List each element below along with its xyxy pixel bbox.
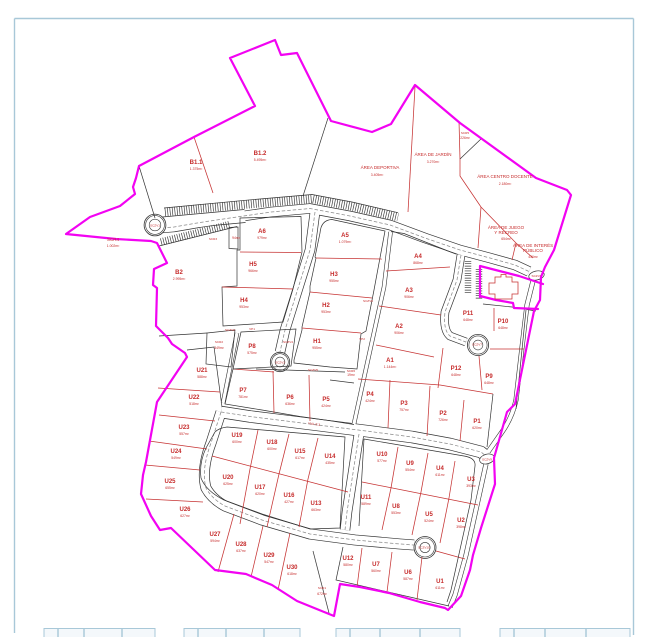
svg-text:U17: U17 <box>254 485 266 491</box>
svg-text:U23: U23 <box>178 425 190 431</box>
svg-text:SCZV5: SCZV5 <box>308 368 318 372</box>
svg-text:P4: P4 <box>366 392 374 398</box>
svg-text:P6: P6 <box>286 395 294 401</box>
svg-text:SCZV1: SCZV1 <box>150 224 160 228</box>
svg-text:P9: P9 <box>485 374 493 380</box>
svg-text:757m²: 757m² <box>399 408 409 412</box>
svg-text:A5: A5 <box>341 233 349 239</box>
svg-text:U14: U14 <box>324 454 336 460</box>
svg-text:553m²: 553m² <box>391 511 401 515</box>
svg-text:1.144m²: 1.144m² <box>384 365 397 369</box>
svg-text:1.002m²: 1.002m² <box>107 244 120 248</box>
svg-text:648m²: 648m² <box>463 318 473 322</box>
svg-text:U13: U13 <box>310 501 322 507</box>
svg-text:1.375m²: 1.375m² <box>190 167 203 171</box>
svg-text:349m²: 349m² <box>214 346 224 350</box>
svg-text:SCZV6: SCZV6 <box>363 299 373 303</box>
svg-text:19m²: 19m² <box>347 373 356 377</box>
svg-text:ÁREA CENTRO DOCENTE: ÁREA CENTRO DOCENTE <box>477 173 533 179</box>
svg-text:637m²: 637m² <box>236 549 246 553</box>
svg-text:781m²: 781m² <box>238 395 248 399</box>
svg-text:U25: U25 <box>164 479 176 485</box>
svg-text:600m²: 600m² <box>267 447 277 451</box>
svg-text:SCZV7: SCZV7 <box>472 343 482 347</box>
svg-text:1.079m²: 1.079m² <box>339 240 352 244</box>
svg-text:393m²: 393m² <box>466 484 476 488</box>
svg-text:A1: A1 <box>386 358 394 364</box>
svg-text:ÁREA DE JARDÍN: ÁREA DE JARDÍN <box>414 151 451 157</box>
svg-text:P8: P8 <box>248 344 256 350</box>
svg-text:654m²: 654m² <box>501 237 511 241</box>
svg-text:PÚBLICO: PÚBLICO <box>523 247 543 253</box>
svg-text:P10: P10 <box>498 319 509 325</box>
svg-text:648m²: 648m² <box>451 373 461 377</box>
svg-text:906m²: 906m² <box>404 295 414 299</box>
svg-text:P5: P5 <box>322 397 330 403</box>
svg-text:620m²: 620m² <box>255 492 265 496</box>
svg-text:575m²: 575m² <box>247 351 257 355</box>
svg-text:3.405m²: 3.405m² <box>371 173 384 177</box>
svg-text:625m²: 625m² <box>223 482 233 486</box>
svg-text:554m²: 554m² <box>405 468 415 472</box>
svg-text:A2: A2 <box>395 324 403 330</box>
svg-text:B2: B2 <box>175 270 183 276</box>
svg-text:U18: U18 <box>266 440 278 446</box>
svg-text:SCZV10: SCZV10 <box>418 546 430 550</box>
svg-text:577m²: 577m² <box>377 459 387 463</box>
svg-text:ÁREA DEPORTIVA: ÁREA DEPORTIVA <box>361 164 400 170</box>
svg-text:5.495m²: 5.495m² <box>254 158 267 162</box>
svg-text:979m²: 979m² <box>257 236 267 240</box>
svg-text:549m²: 549m² <box>171 456 181 460</box>
svg-text:398m²: 398m² <box>456 525 466 529</box>
svg-text:P2: P2 <box>439 411 447 417</box>
svg-text:U1: U1 <box>436 579 444 585</box>
svg-text:SCZV3: SCZV3 <box>275 361 285 365</box>
svg-text:427m²: 427m² <box>284 500 294 504</box>
svg-text:SCR5: SCR5 <box>461 131 470 135</box>
svg-text:589m²: 589m² <box>361 502 371 506</box>
svg-text:672m²: 672m² <box>317 592 327 596</box>
svg-text:SCR3: SCR3 <box>209 237 218 241</box>
svg-text:518m²: 518m² <box>189 402 199 406</box>
svg-text:557m²: 557m² <box>179 432 189 436</box>
svg-text:P1: P1 <box>473 419 481 425</box>
svg-text:966m²: 966m² <box>248 269 258 273</box>
svg-text:663m²: 663m² <box>311 508 321 512</box>
svg-text:B1.2: B1.2 <box>254 151 267 157</box>
svg-text:U3: U3 <box>467 477 475 483</box>
svg-text:VP2: VP2 <box>359 337 365 341</box>
svg-text:648m²: 648m² <box>484 381 494 385</box>
svg-text:U16: U16 <box>283 493 295 499</box>
svg-text:547m²: 547m² <box>264 560 274 564</box>
svg-text:U24: U24 <box>170 449 182 455</box>
svg-text:2.180m²: 2.180m² <box>499 182 512 186</box>
svg-text:580m²: 580m² <box>343 563 353 567</box>
svg-text:648m²: 648m² <box>498 326 508 330</box>
svg-text:226m²: 226m² <box>460 136 470 140</box>
svg-text:594m²: 594m² <box>210 539 220 543</box>
svg-text:SCZV4: SCZV4 <box>283 340 293 344</box>
svg-text:588m²: 588m² <box>197 375 207 379</box>
svg-text:SCR4: SCR4 <box>107 237 120 242</box>
svg-text:436m²: 436m² <box>528 255 538 259</box>
svg-text:U2: U2 <box>457 518 465 524</box>
svg-text:953m²: 953m² <box>321 310 331 314</box>
svg-text:955m²: 955m² <box>312 346 322 350</box>
svg-text:U30: U30 <box>286 565 298 571</box>
svg-text:868m²: 868m² <box>413 261 423 265</box>
svg-text:636m²: 636m² <box>285 402 295 406</box>
svg-text:U28: U28 <box>235 542 247 548</box>
svg-text:U9: U9 <box>406 461 414 467</box>
svg-text:U27: U27 <box>209 532 221 538</box>
svg-text:587m²: 587m² <box>403 577 413 581</box>
svg-text:U8: U8 <box>392 504 400 510</box>
svg-text:424m²: 424m² <box>321 404 331 408</box>
svg-text:U7: U7 <box>372 562 380 568</box>
svg-text:906m²: 906m² <box>394 331 404 335</box>
svg-text:H1: H1 <box>313 339 321 345</box>
svg-text:U21: U21 <box>196 368 208 374</box>
svg-text:620m²: 620m² <box>472 426 482 430</box>
svg-text:U15: U15 <box>294 449 306 455</box>
svg-text:SCR1: SCR1 <box>318 586 327 590</box>
svg-text:A4: A4 <box>414 254 422 260</box>
svg-text:U29: U29 <box>263 553 275 559</box>
svg-text:U12: U12 <box>342 556 354 562</box>
svg-text:94m²: 94m² <box>232 236 241 240</box>
svg-text:VP1: VP1 <box>249 327 255 331</box>
svg-text:3.270m²: 3.270m² <box>427 160 440 164</box>
svg-text:524m²: 524m² <box>424 519 434 523</box>
svg-text:600m²: 600m² <box>232 440 242 444</box>
svg-text:2.995m²: 2.995m² <box>173 277 186 281</box>
svg-text:P11: P11 <box>463 311 474 317</box>
svg-text:560m²: 560m² <box>371 569 381 573</box>
svg-text:611m²: 611m² <box>435 473 445 477</box>
svg-text:U19: U19 <box>231 433 243 439</box>
svg-text:618m²: 618m² <box>287 572 297 576</box>
svg-text:H5: H5 <box>249 262 257 268</box>
svg-text:SCZV9: SCZV9 <box>482 458 492 462</box>
svg-text:P3: P3 <box>400 401 408 407</box>
svg-text:P12: P12 <box>451 366 462 372</box>
svg-text:Y RECREO: Y RECREO <box>494 230 518 235</box>
svg-text:SCR2: SCR2 <box>215 340 224 344</box>
svg-text:B1.1: B1.1 <box>190 160 203 166</box>
svg-text:H2: H2 <box>322 303 330 309</box>
svg-text:U5: U5 <box>425 512 433 518</box>
svg-text:424m²: 424m² <box>365 399 375 403</box>
svg-text:435m²: 435m² <box>325 461 335 465</box>
svg-text:953m²: 953m² <box>239 305 249 309</box>
svg-text:H4: H4 <box>240 298 248 304</box>
svg-text:655m²: 655m² <box>165 486 175 490</box>
svg-text:617m²: 617m² <box>295 456 305 460</box>
svg-text:U26: U26 <box>179 507 191 513</box>
svg-text:U22: U22 <box>188 395 200 401</box>
svg-text:U20: U20 <box>222 475 234 481</box>
svg-text:955m²: 955m² <box>329 279 339 283</box>
svg-text:U11: U11 <box>361 495 372 501</box>
svg-text:SCZV2: SCZV2 <box>225 328 235 332</box>
svg-text:U10: U10 <box>376 452 388 458</box>
svg-text:H3: H3 <box>330 272 338 278</box>
svg-text:627m²: 627m² <box>180 514 190 518</box>
svg-text:U6: U6 <box>404 570 412 576</box>
svg-text:P7: P7 <box>239 388 247 394</box>
svg-text:A3: A3 <box>405 288 413 294</box>
svg-text:611m²: 611m² <box>435 586 445 590</box>
svg-text:U4: U4 <box>436 466 444 472</box>
svg-text:726m²: 726m² <box>438 418 448 422</box>
svg-text:A6: A6 <box>258 229 266 235</box>
